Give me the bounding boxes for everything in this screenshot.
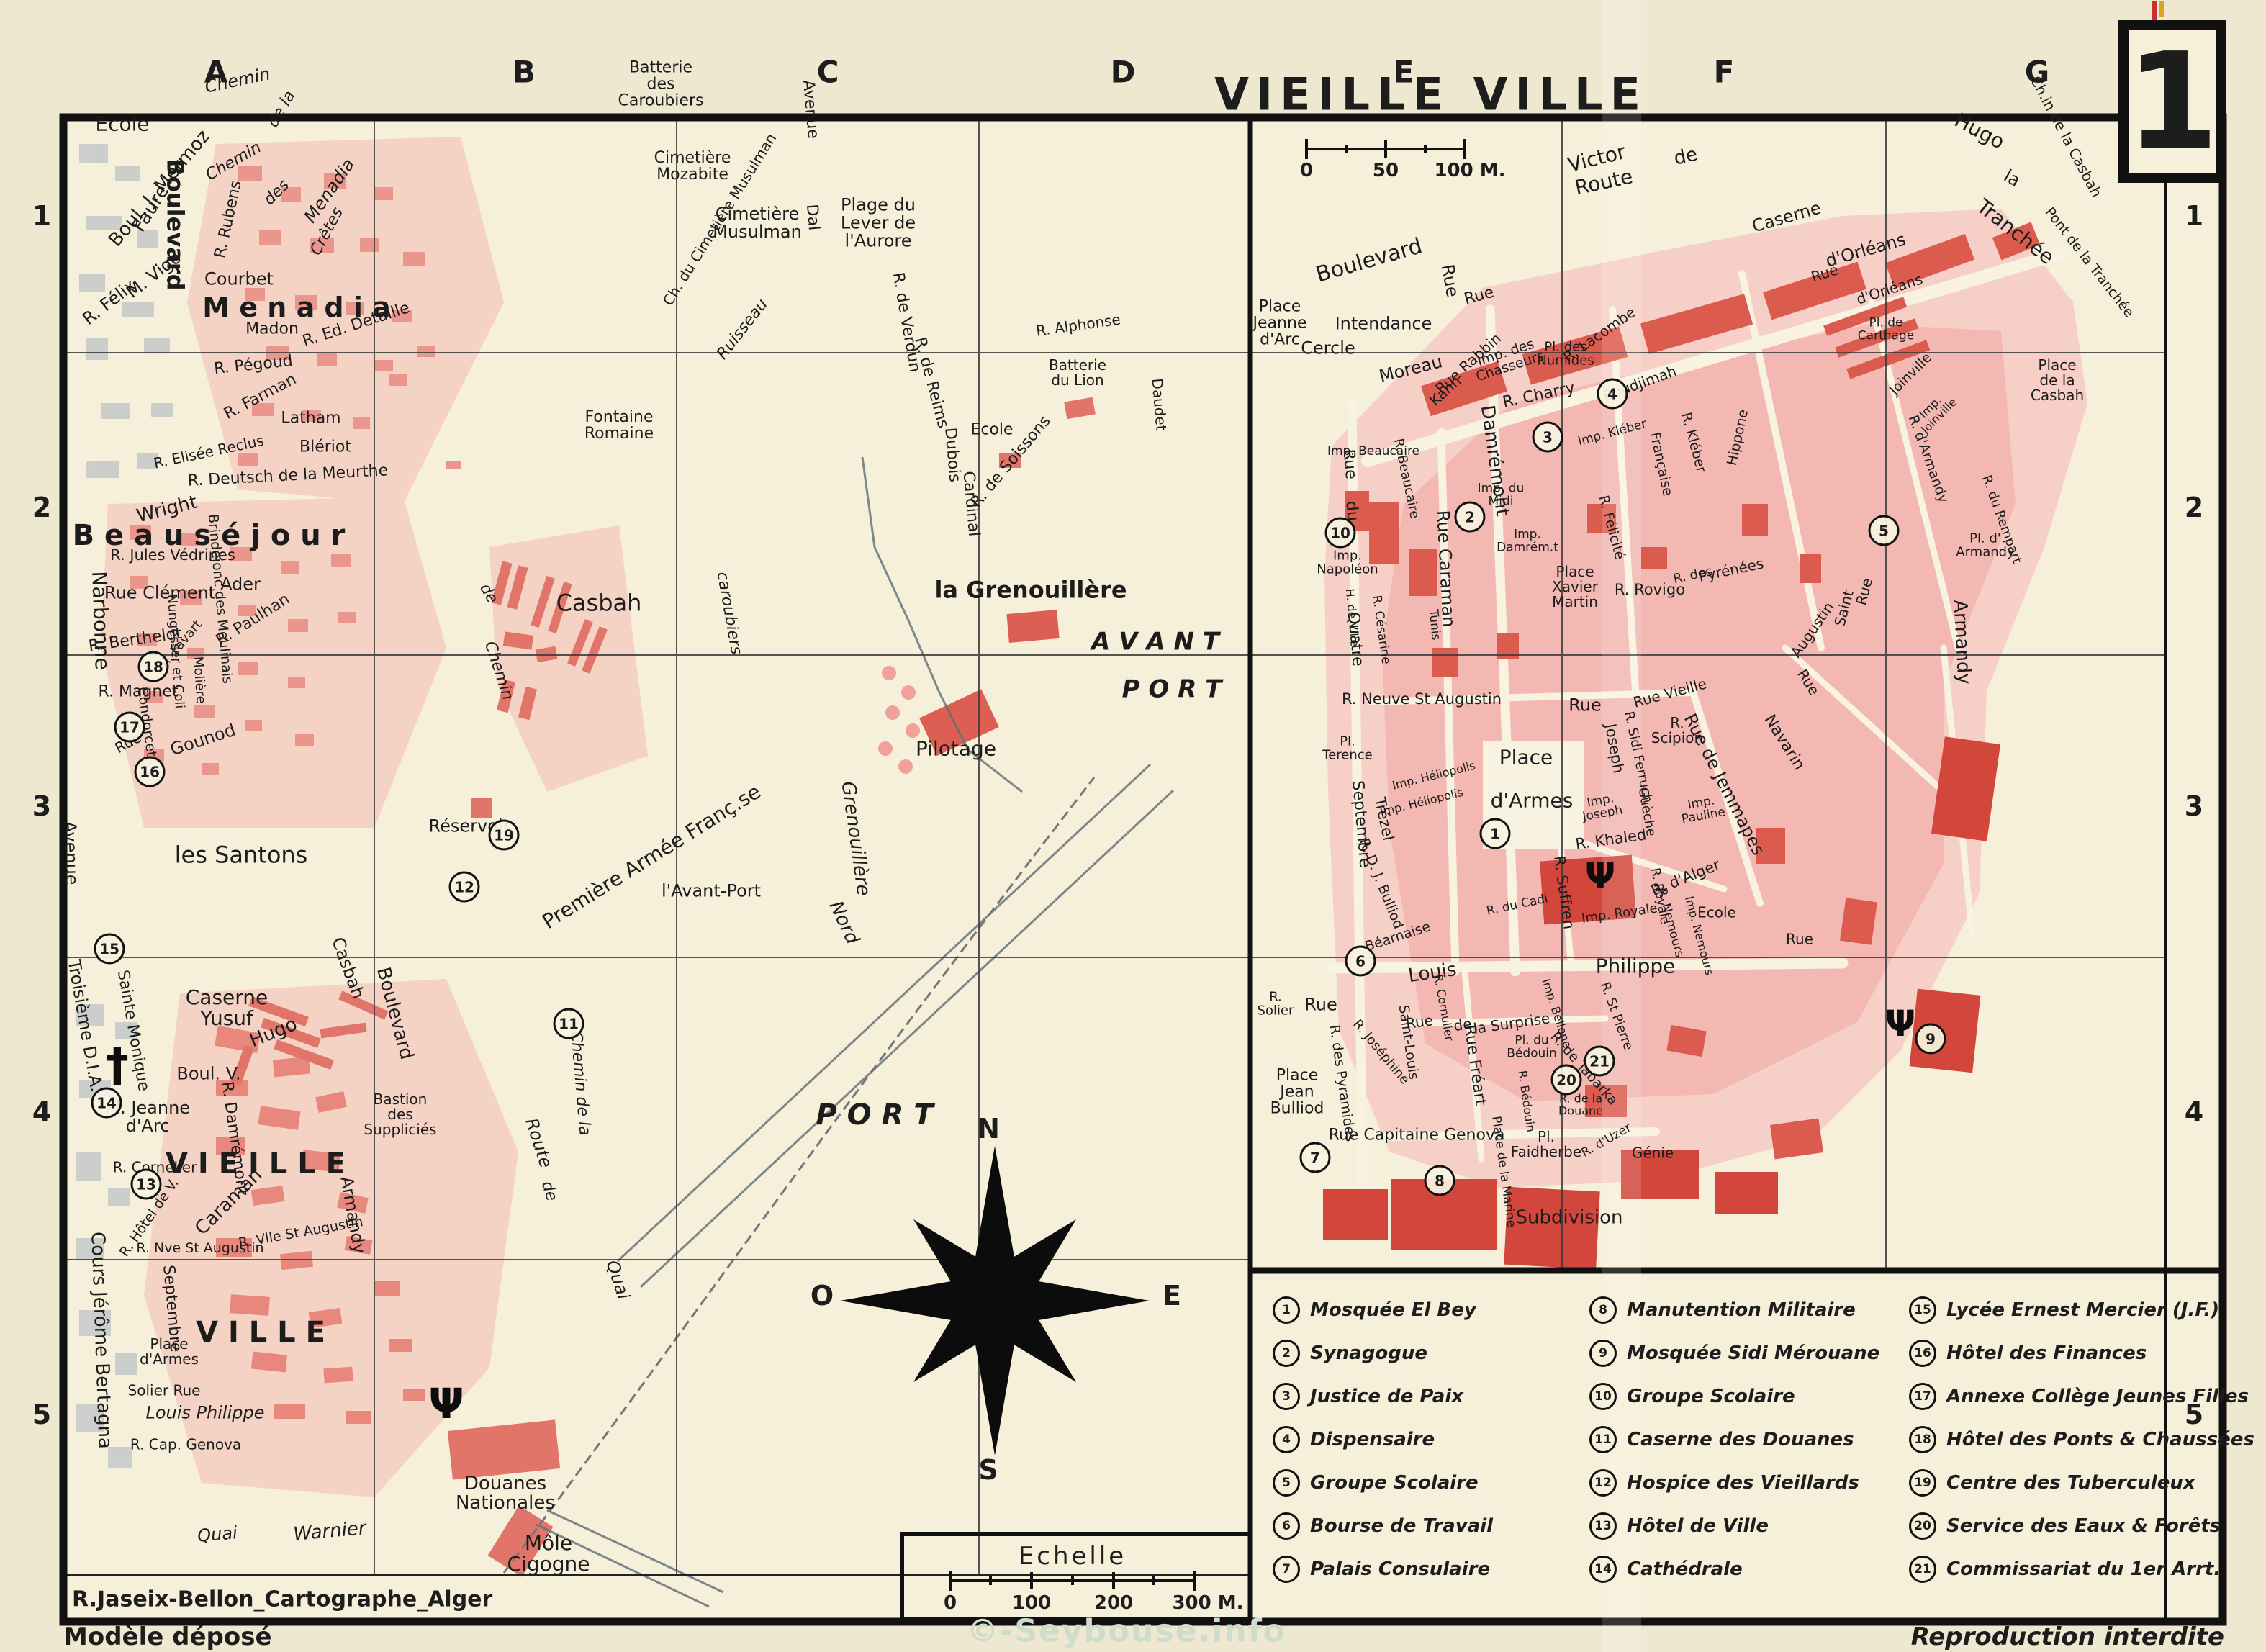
- map-marker: 12: [449, 872, 480, 903]
- map-label: Place d'Armes: [140, 1337, 199, 1367]
- legend-item: 8Manutention Militaire: [1589, 1288, 1906, 1332]
- map-label: Dal: [803, 204, 821, 231]
- map-label: Ecole: [95, 113, 149, 134]
- map-label: Génie: [1632, 1146, 1674, 1161]
- map-label: Cimetière Musulman: [713, 205, 802, 241]
- mosque-icon: Ψ: [1885, 1006, 1915, 1042]
- map-label: Rue: [1568, 697, 1602, 715]
- map-label: R. de la Douane: [1558, 1093, 1603, 1116]
- legend-item: 15Lycée Ernest Mercier (J.F.): [1909, 1288, 2247, 1332]
- legend-item-label: Commissariat du 1er Arrt.: [1946, 1558, 2221, 1580]
- echelle-title: Echelle: [1019, 1542, 1127, 1571]
- map-label: A V A N T: [1091, 629, 1219, 654]
- legend-item: 2Synagogue: [1273, 1332, 1589, 1375]
- grid-row-number: 1: [32, 200, 51, 232]
- map-marker: 15: [94, 934, 125, 965]
- legend-item-number: 5: [1273, 1469, 1300, 1497]
- legend-item: 17Annexe Collège Jeunes Filles: [1909, 1375, 2247, 1418]
- map-label: Quai: [197, 1524, 238, 1545]
- legend-item-label: Mosquée Sidi Mérouane: [1627, 1342, 1879, 1364]
- map-label: Imp. Damrém.t: [1497, 528, 1558, 554]
- legend-item: 21Commissariat du 1er Arrt.: [1909, 1548, 2247, 1591]
- legend-item: 18Hôtel des Ponts & Chaussées: [1909, 1418, 2247, 1461]
- legend-item-number: 10: [1589, 1383, 1617, 1410]
- map-label: Batterie des Caroubiers: [618, 60, 704, 110]
- legend-item-label: Groupe Scolaire: [1627, 1386, 1795, 1407]
- map-label: de: [1672, 145, 1699, 168]
- legend-item-number: 16: [1909, 1340, 1936, 1367]
- map-marker: 2: [1455, 502, 1486, 533]
- map-label: Môle Cigogne: [507, 1533, 590, 1574]
- map-label: Daudet: [1149, 378, 1168, 432]
- map-label: R. Solier: [1258, 990, 1294, 1017]
- legend-item-label: Hôtel de Ville: [1627, 1515, 1769, 1537]
- map-label: Douanes Nationales: [456, 1474, 555, 1513]
- legend-item: 13Hôtel de Ville: [1589, 1504, 1906, 1548]
- map-marker: 18: [138, 651, 169, 682]
- map-label: Louis Philippe: [146, 1404, 265, 1422]
- map-label: Imp. du Midi: [1478, 482, 1525, 507]
- map-marker: 17: [114, 712, 145, 743]
- map-marker: 10: [1325, 518, 1356, 549]
- scale-tick-label: 50: [1373, 160, 1399, 181]
- scale-tick-label: 300 M.: [1172, 1592, 1243, 1614]
- scale-tick-label: 100 M.: [1434, 160, 1505, 181]
- map-marker: 13: [131, 1169, 162, 1200]
- legend-item-number: 11: [1589, 1426, 1617, 1453]
- map-label: Cimetière Mozabite: [654, 150, 731, 184]
- map-marker: 6: [1345, 946, 1376, 977]
- legend-item-number: 20: [1909, 1512, 1936, 1540]
- map-label: Blériot: [299, 440, 351, 456]
- cross-icon: †: [106, 1042, 129, 1088]
- legend-item-number: 7: [1273, 1556, 1300, 1583]
- grid-column-letter: B: [513, 55, 536, 90]
- cartographer-credit: R.Jaseix-Bellon_Cartographe_Alger: [72, 1587, 492, 1612]
- grid-column-letter: C: [817, 55, 839, 90]
- map-label: Intendance: [1335, 315, 1432, 333]
- map-marker: 19: [489, 820, 520, 851]
- map-label: l'Avant-Port: [662, 883, 761, 901]
- map-label: Rue Capitaine Genova: [1329, 1128, 1505, 1145]
- map-marker: 9: [1915, 1024, 1946, 1055]
- map-label: Courbet: [204, 271, 274, 289]
- legend-item: 10Groupe Scolaire: [1589, 1375, 1906, 1418]
- legend-item-number: 15: [1909, 1296, 1936, 1324]
- map-label: Philippe: [1596, 955, 1676, 976]
- map-label: R. Cap. Genova: [130, 1437, 241, 1453]
- legend-item-number: 6: [1273, 1512, 1300, 1540]
- grid-column-letter: F: [1714, 55, 1735, 90]
- map-marker: 21: [1584, 1046, 1615, 1077]
- map-label: Ecole: [970, 423, 1013, 439]
- legend-item-label: Service des Eaux & Forêts: [1946, 1515, 2221, 1537]
- map-marker: 5: [1869, 515, 1900, 546]
- legend-item-label: Cathédrale: [1627, 1558, 1743, 1580]
- map-label: les Santons: [175, 843, 308, 867]
- legend-item: 12Hospice des Vieillards: [1589, 1461, 1906, 1504]
- grid-row-number: 3: [2185, 790, 2203, 822]
- map-label: Rue: [1438, 263, 1461, 298]
- map-label: la Grenouillère: [934, 578, 1127, 602]
- map-plate: ABCDEFG 12345 12345 1 VIEILLE VILLE 0501…: [0, 0, 2266, 1652]
- legend-item-label: Dispensaire: [1310, 1429, 1435, 1450]
- map-label: Molière: [190, 656, 207, 705]
- map-marker: 16: [135, 757, 166, 787]
- map-label: Place: [1499, 746, 1553, 767]
- map-label: P O R T: [1122, 677, 1222, 702]
- legend-item-label: Centre des Tuberculeux: [1946, 1472, 2195, 1494]
- map-label: V I L L E: [196, 1318, 325, 1348]
- legend-item: 5Groupe Scolaire: [1273, 1461, 1589, 1504]
- grid-row-number: 2: [32, 492, 51, 523]
- legend-item-number: 19: [1909, 1469, 1936, 1497]
- map-label: Ecole: [1697, 906, 1736, 921]
- scale-tick-label: 0: [944, 1592, 957, 1614]
- map-label: Tunis: [1426, 609, 1441, 641]
- legend-item-number: 17: [1909, 1383, 1936, 1410]
- map-marker: 8: [1425, 1165, 1455, 1196]
- legend-item-number: 1: [1273, 1296, 1300, 1324]
- mosque-icon: Ψ: [1585, 858, 1615, 894]
- legend-item-label: Groupe Scolaire: [1310, 1472, 1479, 1494]
- legend-item-number: 8: [1589, 1296, 1617, 1324]
- map-label: Pl. Faidherbe: [1511, 1129, 1581, 1160]
- scale-tick-label: 200: [1094, 1592, 1133, 1614]
- legend-item-number: 9: [1589, 1340, 1617, 1367]
- map-label: Solier Rue: [128, 1384, 201, 1399]
- legend-item: 9Mosquée Sidi Mérouane: [1589, 1332, 1906, 1375]
- map-label: Plage du Lever de l'Aurore: [841, 197, 916, 250]
- grid-row-number: 5: [32, 1399, 51, 1430]
- map-label: d'Armes: [1491, 790, 1574, 811]
- map-marker: 4: [1597, 379, 1628, 410]
- grid-row-number: 3: [32, 790, 51, 822]
- legend-item-label: Justice de Paix: [1310, 1386, 1463, 1407]
- reproduction-note: Reproduction interdite: [1911, 1622, 2224, 1651]
- model-depose-note: Modèle déposé: [63, 1622, 272, 1651]
- map-label: Place Jeanne d'Arc: [1253, 299, 1307, 349]
- map-label: Rue: [1340, 448, 1358, 480]
- map-label: Cercle: [1301, 340, 1355, 358]
- legend-item-number: 2: [1273, 1340, 1300, 1367]
- grid-row-number: 4: [2185, 1096, 2203, 1128]
- legend-item-label: Bourse de Travail: [1310, 1515, 1493, 1537]
- legend-item-label: Hôtel des Ponts & Chaussées: [1946, 1429, 2254, 1450]
- compass-south-label: S: [978, 1454, 998, 1486]
- map-label: Pilotage: [916, 738, 996, 759]
- map-label: Imp. Napoléon: [1317, 549, 1378, 576]
- map-label: Rue: [1304, 996, 1337, 1014]
- map-marker: 7: [1300, 1142, 1331, 1173]
- legend-item-number: 13: [1589, 1512, 1617, 1540]
- legend-item-number: 18: [1909, 1426, 1936, 1453]
- legend-item-label: Hospice des Vieillards: [1627, 1472, 1859, 1494]
- map-label: Pl. de Carthage: [1858, 317, 1914, 342]
- map-label: Pl. Terence: [1322, 735, 1372, 762]
- legend-item: 20Service des Eaux & Forêts: [1909, 1504, 2247, 1548]
- compass-east-label: E: [1163, 1280, 1181, 1312]
- compass-north-label: N: [977, 1113, 1000, 1145]
- legend-item: 3Justice de Paix: [1273, 1375, 1589, 1418]
- map-marker: 3: [1533, 422, 1563, 453]
- map-label: Place Xavier Martin: [1552, 564, 1598, 609]
- map-label: Pl. du Bédouin: [1507, 1034, 1557, 1060]
- legend-item: 7Palais Consulaire: [1273, 1548, 1589, 1591]
- legend-item-label: Manutention Militaire: [1627, 1299, 1856, 1321]
- legend-item: 1Mosquée El Bey: [1273, 1288, 1589, 1332]
- legend-item: 6Bourse de Travail: [1273, 1504, 1589, 1548]
- legend-item-number: 21: [1909, 1556, 1936, 1583]
- map-label: Subdivision: [1516, 1208, 1623, 1227]
- right-map-title: VIEILLE VILLE: [1214, 68, 1648, 121]
- map-label: Armandy: [1949, 600, 1973, 685]
- map-label: Madon: [245, 322, 299, 338]
- scale-tick-label: 100: [1012, 1592, 1051, 1614]
- map-marker: 20: [1551, 1065, 1582, 1096]
- legend-column-1: 1Mosquée El Bey2Synagogue3Justice de Pai…: [1273, 1288, 1589, 1591]
- legend-item-label: Hôtel des Finances: [1946, 1342, 2147, 1364]
- legend-item: 19Centre des Tuberculeux: [1909, 1461, 2247, 1504]
- map-label: Place Jean Bulliod: [1270, 1068, 1324, 1118]
- legend-item-label: Lycée Ernest Mercier (J.F.): [1946, 1299, 2219, 1321]
- legend-item-number: 12: [1589, 1469, 1617, 1497]
- map-label: Bastion des Suppliciés: [364, 1092, 436, 1137]
- legend-item-number: 3: [1273, 1383, 1300, 1410]
- compass-west-label: O: [811, 1280, 834, 1312]
- map-label: Fontaine Romaine: [584, 410, 654, 443]
- legend-item-number: 14: [1589, 1556, 1617, 1583]
- legend-item: 11Caserne des Douanes: [1589, 1418, 1906, 1461]
- map-label: Latham: [281, 411, 340, 428]
- map-label: R. Neuve St Augustin: [1342, 692, 1502, 708]
- map-marker: 1: [1480, 818, 1511, 849]
- watermark: ©-Seybouse.info: [967, 1613, 1286, 1650]
- legend-column-3: 15Lycée Ernest Mercier (J.F.)16Hôtel des…: [1909, 1288, 2247, 1591]
- grid-row-number: 2: [2185, 492, 2203, 523]
- legend-item: 16Hôtel des Finances: [1909, 1332, 2247, 1375]
- grid-row-number: 1: [2185, 200, 2203, 232]
- map-label: Place de la Casbah: [2031, 358, 2084, 402]
- legend-item: 14Cathédrale: [1589, 1548, 1906, 1591]
- legend-item-label: Synagogue: [1310, 1342, 1427, 1364]
- map-label: Casbah: [556, 591, 642, 615]
- legend-item-label: Palais Consulaire: [1310, 1558, 1490, 1580]
- grid-column-letter: D: [1111, 55, 1136, 90]
- legend-item-number: 4: [1273, 1426, 1300, 1453]
- map-label: Boulevard: [163, 159, 186, 291]
- legend-item-label: Caserne des Douanes: [1627, 1429, 1854, 1450]
- map-label: Batterie du Lion: [1049, 358, 1106, 388]
- grid-row-number: 4: [32, 1096, 51, 1128]
- legend-item-label: Annexe Collège Jeunes Filles: [1946, 1386, 2249, 1407]
- legend-item: 4Dispensaire: [1273, 1418, 1589, 1461]
- map-label: Caserne Yusuf: [186, 987, 268, 1029]
- legend-item-label: Mosquée El Bey: [1310, 1299, 1476, 1321]
- map-label: P O R T: [816, 1101, 933, 1131]
- map-label: Avenue: [60, 821, 81, 885]
- plate-number: 1: [2118, 20, 2226, 183]
- legend-column-2: 8Manutention Militaire9Mosquée Sidi Méro…: [1589, 1288, 1906, 1591]
- map-label: Rue Clément: [104, 584, 215, 602]
- map-label: Rue: [1786, 932, 1813, 947]
- map-marker: 11: [554, 1008, 584, 1039]
- mosque-icon: Ψ: [428, 1383, 464, 1425]
- scale-tick-label: 0: [1300, 160, 1313, 181]
